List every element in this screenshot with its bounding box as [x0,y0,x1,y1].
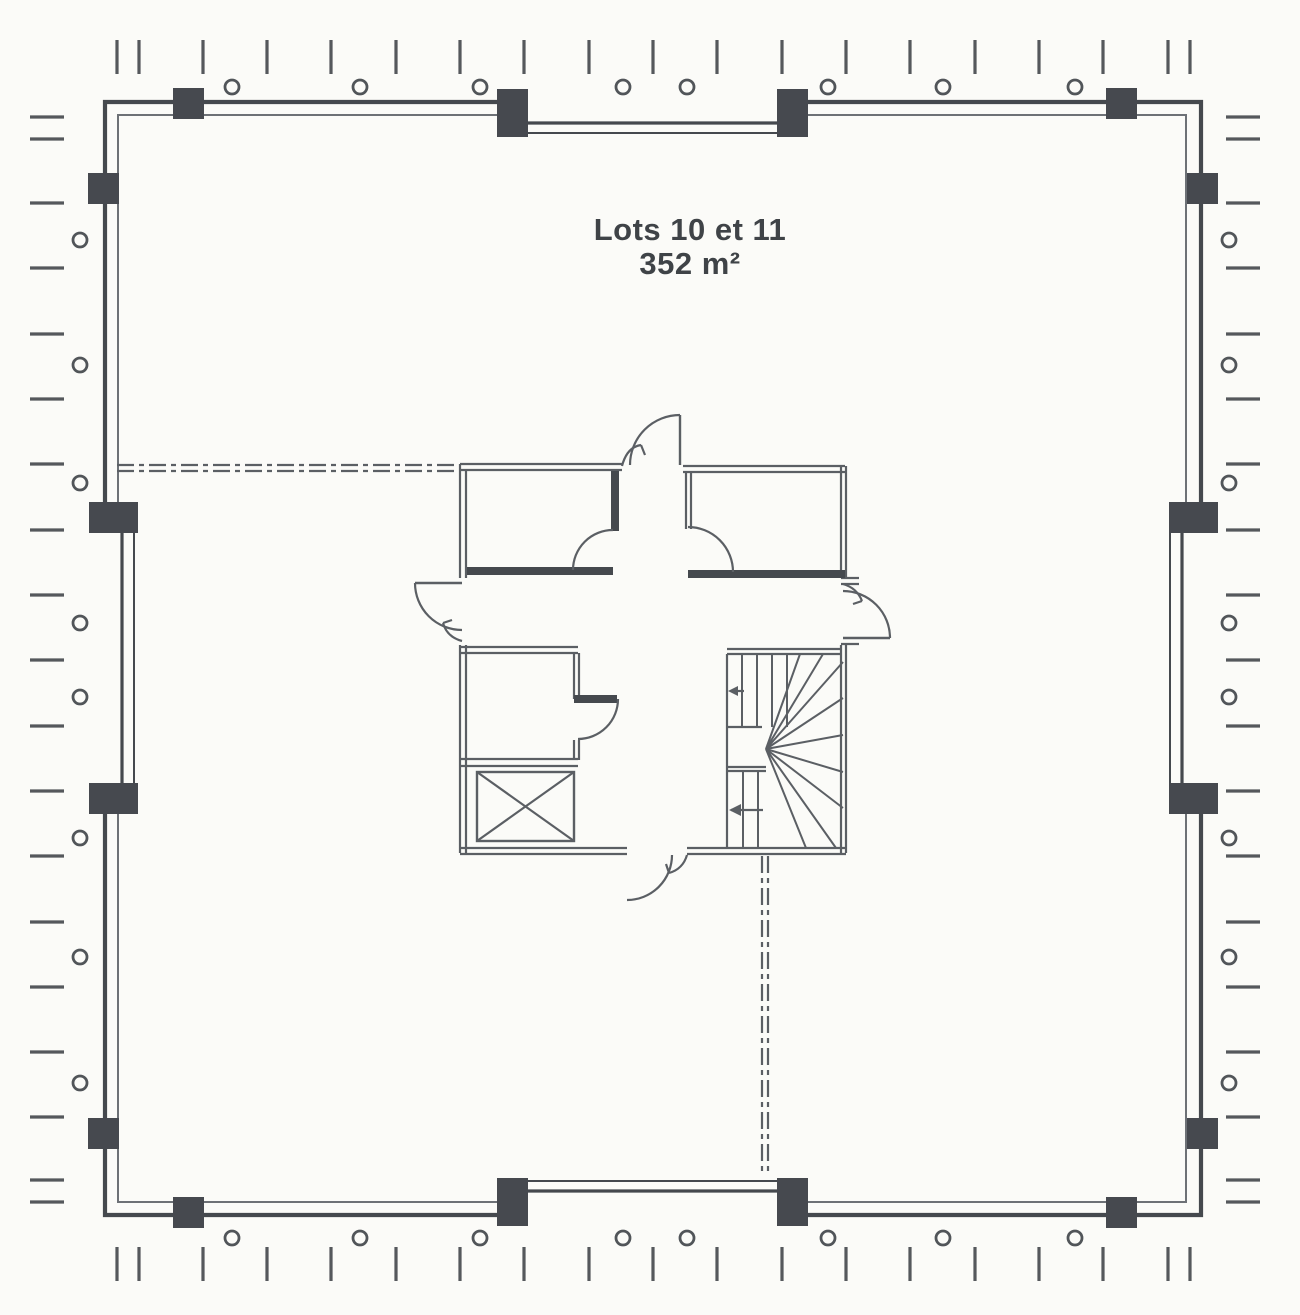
door-small-leaf [843,584,862,604]
door-swing-arc [573,530,613,570]
facade-circle [821,80,835,94]
stair-winder-line [766,749,843,772]
facade-circle [73,690,87,704]
column [777,1178,808,1226]
door-small-leaf [666,855,687,873]
column [88,1118,119,1149]
stair-arrow-head [728,686,738,696]
facade-circle [73,950,87,964]
column [173,1197,204,1228]
facade-circle [1222,476,1236,490]
facade-circle [1068,80,1082,94]
facade-circle [821,1231,835,1245]
floor-plan-page: Lots 10 et 11 352 m² [0,0,1300,1315]
door-swing-arc [578,699,618,739]
column [1106,88,1137,119]
lot-title-label: Lots 10 et 11 [594,212,787,247]
facade-circle [73,233,87,247]
facade-circle [73,1076,87,1090]
facade-circle [353,1231,367,1245]
facade-circle [680,80,694,94]
facade-circle [1222,233,1236,247]
column [497,1178,528,1226]
facade-circle [616,1231,630,1245]
column [497,89,528,137]
column [89,502,138,533]
door-swing-arc [415,583,462,630]
column [1187,173,1218,204]
door-swing-arc [688,527,733,572]
stair-arrow-head [729,804,741,816]
staircase [728,654,843,848]
door-swing-arc [630,415,680,465]
column [1187,1118,1218,1149]
facade-circle [73,358,87,372]
column [1169,502,1218,533]
floor-plan-canvas: Lots 10 et 11 352 m² [0,0,1300,1315]
column [1169,783,1218,814]
facade-circle [1222,950,1236,964]
column [1106,1197,1137,1228]
column [88,173,119,204]
column [777,89,808,137]
facade-circle [73,476,87,490]
column [89,783,138,814]
facade-circle [680,1231,694,1245]
facade-circle [1222,690,1236,704]
facade-circle [1068,1231,1082,1245]
door-swing-arc [627,855,672,900]
facade-circle [353,80,367,94]
facade-circle [616,80,630,94]
facade-circle [936,80,950,94]
lot-area-label: 352 m² [639,246,740,281]
door-swing-arc [843,591,890,638]
facade-circle [473,1231,487,1245]
door-small-leaf [622,445,645,466]
recessed-curtain-walls [122,123,1182,1191]
elevator-shaft [477,772,574,841]
column [173,88,204,119]
facade-circle [1222,358,1236,372]
facade-circle [473,80,487,94]
door-swings [415,415,890,900]
lot-boundary-lines [117,465,768,1176]
facade-circle [225,1231,239,1245]
facade-circle [225,80,239,94]
facade-circle [1222,831,1236,845]
facade-circle [73,616,87,630]
facade-circle [1222,1076,1236,1090]
facade-circle [73,831,87,845]
facade-circle [936,1231,950,1245]
facade-circle [1222,616,1236,630]
